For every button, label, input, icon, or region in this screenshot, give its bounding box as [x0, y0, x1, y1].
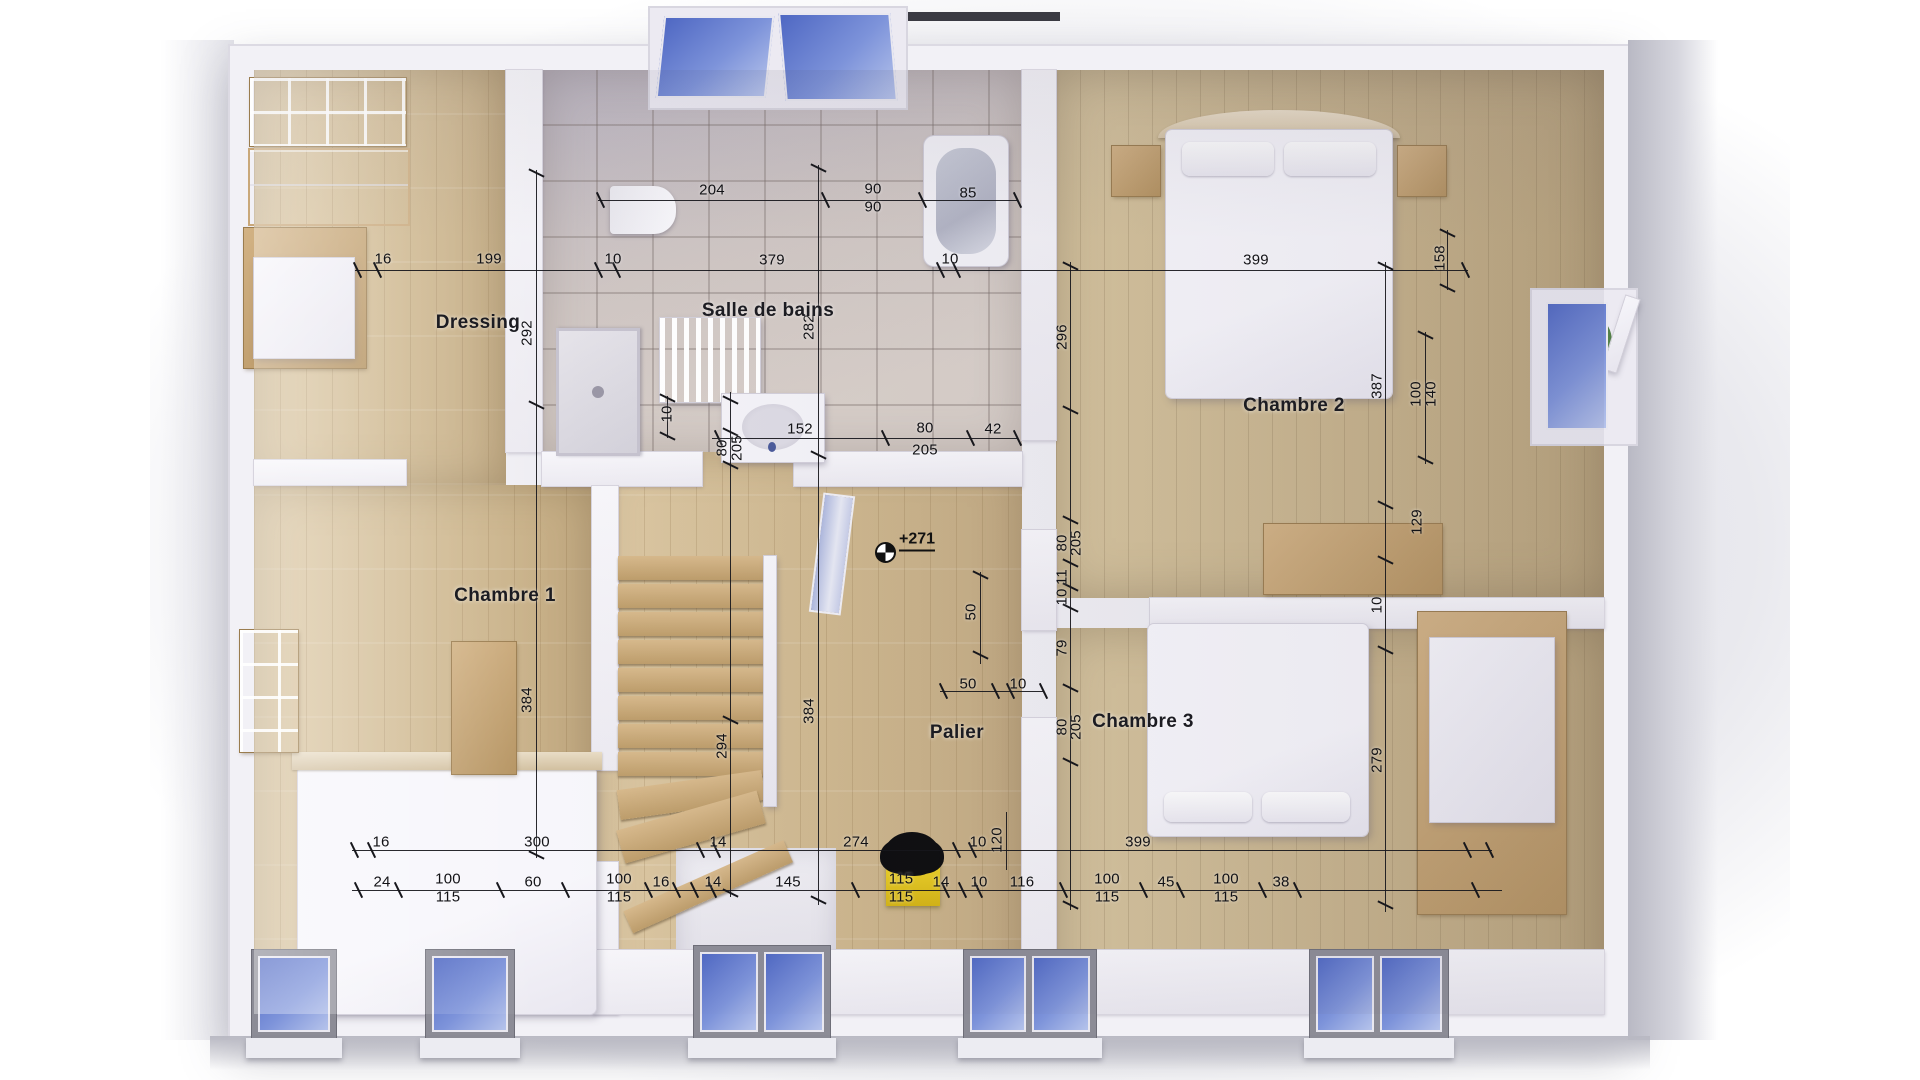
level-marker-label: +271 — [899, 531, 935, 552]
dimension-label: 115 — [607, 889, 632, 906]
dimension-label: 10 — [1369, 596, 1386, 613]
level-marker-icon — [875, 542, 896, 563]
dimension-label: 199 — [476, 251, 502, 268]
dimension-label: 90 — [864, 181, 881, 198]
room-label: Chambre 2 — [1243, 395, 1345, 417]
dimension-label: 399 — [1125, 834, 1151, 851]
dimension-label: 50 — [963, 603, 980, 620]
dimension-label: 387 — [1369, 373, 1386, 399]
dimension-label: 115 — [1095, 889, 1120, 906]
dimension-label: 10 — [941, 251, 958, 268]
dimension-label: 384 — [519, 687, 536, 713]
dimension-label: 16 — [374, 251, 391, 268]
dimension-label: 14 — [704, 874, 721, 891]
dimension-label: 14 — [932, 874, 949, 891]
room-label: Chambre 3 — [1092, 711, 1194, 733]
dimension-label: 399 — [1243, 252, 1269, 269]
dimension-label: 120 — [989, 827, 1006, 853]
dimension-label: 205 — [1068, 714, 1085, 740]
dimension-label: 100 — [435, 871, 461, 888]
room-label: Chambre 1 — [454, 585, 556, 607]
dimension-label: 140 — [1423, 381, 1440, 407]
dimension-label: 152 — [787, 421, 813, 438]
dimension-label: 100 — [606, 871, 632, 888]
dimension-label: 384 — [801, 698, 818, 724]
dimension-label: 10 — [970, 874, 987, 891]
room-label: Salle de bains — [702, 300, 834, 322]
dimension-label: 145 — [775, 874, 801, 891]
dimension-label: 204 — [699, 182, 725, 199]
dimension-label: 14 — [709, 834, 726, 851]
dimension-label: 129 — [1409, 509, 1426, 535]
dimension-label: 45 — [1157, 874, 1174, 891]
dimension-label: 205 — [729, 435, 746, 461]
dimension-label: 205 — [912, 442, 938, 459]
dimension-label: 60 — [524, 874, 541, 891]
dimension-label: 38 — [1272, 874, 1289, 891]
dimension-label: 50 — [959, 676, 976, 693]
dimension-label: 16 — [652, 874, 669, 891]
dimension-label: 10 — [1009, 676, 1026, 693]
dimension-label: 279 — [1369, 747, 1386, 773]
dimension-label: 294 — [714, 733, 731, 759]
dimension-label: 100 — [1213, 871, 1239, 888]
room-label: Palier — [930, 722, 984, 744]
dimension-label: 11 — [1054, 569, 1071, 585]
dimension-label: 115 — [1214, 889, 1239, 906]
dimension-label: 42 — [984, 421, 1001, 438]
dimension-label: 158 — [1432, 245, 1449, 271]
dimension-label: 10 — [969, 834, 986, 851]
dimension-label: 100 — [1094, 871, 1120, 888]
dimension-label: 10 — [1054, 588, 1071, 605]
dimension-label: 116 — [1010, 874, 1035, 891]
dimension-label: 24 — [373, 874, 390, 891]
floor-plan: 2049090851619910379103991582922822963871… — [0, 0, 1920, 1080]
dimension-label: 115 — [889, 871, 914, 888]
dimension-label: 115 — [436, 889, 461, 906]
dimension-label: 10 — [659, 405, 676, 422]
dimension-label: 379 — [759, 252, 785, 269]
dimension-label: 10 — [604, 251, 621, 268]
dimension-label: 300 — [524, 834, 550, 851]
dimension-label: 90 — [864, 199, 881, 216]
dimension-labels: 2049090851619910379103991582922822963871… — [0, 0, 1920, 1080]
dimension-label: 16 — [372, 834, 389, 851]
dimension-label: 296 — [1054, 324, 1071, 350]
dimension-label: 79 — [1054, 639, 1071, 656]
dimension-label: 205 — [1068, 530, 1085, 556]
dimension-label: 274 — [843, 834, 869, 851]
dimension-label: 85 — [959, 185, 976, 202]
room-label: Dressing — [436, 312, 521, 334]
dimension-label: 115 — [889, 889, 914, 906]
dimension-label: 80 — [916, 420, 933, 437]
dimension-label: 292 — [519, 320, 536, 346]
